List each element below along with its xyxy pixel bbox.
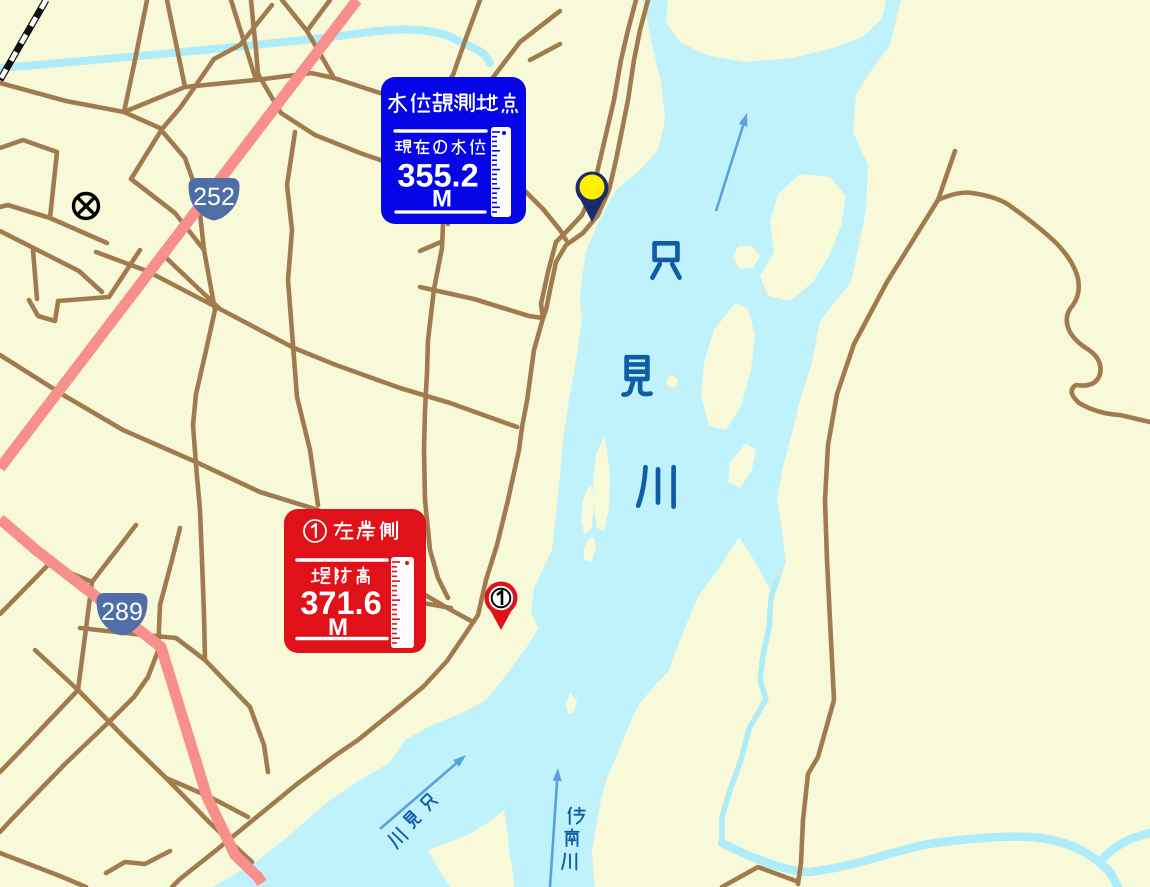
svg-text:289: 289: [101, 598, 143, 626]
svg-text:M: M: [432, 185, 452, 212]
svg-text:252: 252: [193, 183, 235, 211]
